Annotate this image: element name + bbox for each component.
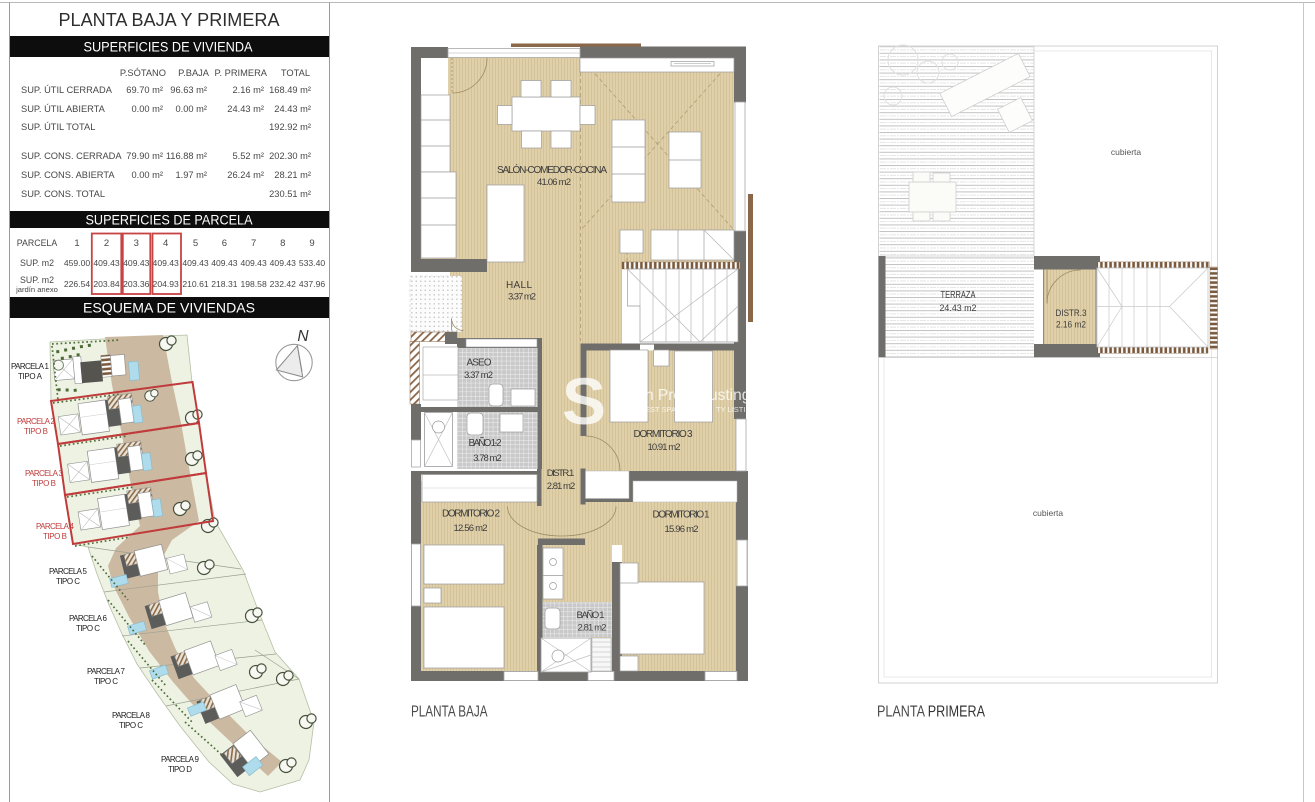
svg-text:TIPO A: TIPO A: [18, 372, 43, 381]
svg-text:TIPO B: TIPO B: [32, 479, 56, 488]
svg-text:24.43 m²: 24.43 m²: [274, 104, 311, 114]
svg-text:232.42: 232.42: [270, 279, 297, 289]
svg-text:SUP. ÚTIL ABIERTA: SUP. ÚTIL ABIERTA: [21, 104, 106, 114]
svg-text:230.51 m²: 230.51 m²: [269, 189, 311, 199]
svg-text:PARCELA 4: PARCELA 4: [36, 522, 75, 531]
svg-text:SUP. ÚTIL CERRADA: SUP. ÚTIL CERRADA: [21, 85, 113, 95]
svg-text:DISTR.3: DISTR.3: [1056, 308, 1087, 318]
svg-text:PARCELA: PARCELA: [17, 238, 58, 248]
svg-text:ASEO: ASEO: [467, 358, 492, 369]
svg-text:SUPERFICIES DE VIVIENDA: SUPERFICIES DE VIVIENDA: [84, 40, 253, 55]
svg-text:210.61: 210.61: [182, 279, 209, 289]
svg-text:69.70 m²: 69.70 m²: [126, 85, 163, 95]
svg-text:2.16 m²: 2.16 m²: [232, 85, 264, 95]
svg-text:3.37 m2: 3.37 m2: [508, 292, 536, 303]
svg-text:2.81 m2: 2.81 m2: [578, 623, 607, 634]
svg-text:8: 8: [280, 238, 285, 249]
svg-text:SUP. ÚTIL TOTAL: SUP. ÚTIL TOTAL: [21, 122, 95, 132]
svg-text:SUP. m2: SUP. m2: [20, 275, 54, 285]
svg-text:41.06 m2: 41.06 m2: [537, 177, 571, 188]
svg-text:DORMITORIO 1: DORMITORIO 1: [653, 510, 710, 521]
svg-text:218.31: 218.31: [211, 279, 238, 289]
svg-text:TIPO B: TIPO B: [43, 532, 67, 541]
svg-text:PLANTA BAJA: PLANTA BAJA: [411, 704, 488, 721]
svg-text:437.96: 437.96: [299, 279, 326, 289]
svg-text:409.43: 409.43: [93, 258, 120, 268]
svg-text:TIPO D: TIPO D: [168, 765, 192, 774]
svg-text:198.58: 198.58: [240, 279, 267, 289]
svg-text:409.43: 409.43: [270, 258, 297, 268]
svg-text:3.37 m2: 3.37 m2: [464, 370, 493, 381]
svg-text:cubierta: cubierta: [1033, 508, 1064, 518]
svg-text:BAÑO 1-2: BAÑO 1-2: [469, 436, 502, 449]
svg-text:409.43: 409.43: [153, 258, 180, 268]
svg-text:PARCELA 6: PARCELA 6: [69, 614, 108, 623]
svg-text:PARCELA 5: PARCELA 5: [49, 567, 88, 576]
svg-text:cubierta: cubierta: [1111, 147, 1142, 157]
svg-text:HALL: HALL: [506, 280, 532, 291]
svg-text:0.00 m²: 0.00 m²: [131, 104, 163, 114]
svg-text:h Pro: h Pro: [645, 387, 682, 404]
svg-text:10.91 m2: 10.91 m2: [648, 442, 681, 453]
svg-text:jardín anexo: jardín anexo: [15, 285, 58, 294]
svg-text:2: 2: [104, 238, 109, 249]
svg-text:TERRAZA: TERRAZA: [941, 290, 976, 301]
svg-text:192.92 m²: 192.92 m²: [269, 122, 311, 132]
svg-text:5: 5: [193, 238, 198, 249]
svg-text:SUP. CONS. CERRADA: SUP. CONS. CERRADA: [21, 151, 122, 161]
svg-text:TIPO C: TIPO C: [94, 677, 118, 686]
svg-text:TIPO C: TIPO C: [119, 721, 143, 730]
svg-text:459.00: 459.00: [64, 258, 91, 268]
svg-text:0.00 m²: 0.00 m²: [131, 170, 163, 180]
svg-text:N: N: [297, 328, 309, 345]
svg-text:7: 7: [251, 238, 256, 249]
svg-text:5.52 m²: 5.52 m²: [232, 151, 264, 161]
svg-text:202.30 m²: 202.30 m²: [269, 151, 311, 161]
svg-text:SUP. m2: SUP. m2: [20, 258, 54, 268]
svg-text:26.24 m²: 26.24 m²: [227, 170, 264, 180]
svg-text:TIPO C: TIPO C: [76, 624, 100, 633]
svg-text:15.96 m2: 15.96 m2: [665, 524, 699, 535]
svg-text:203.84: 203.84: [93, 279, 120, 289]
svg-text:DORMITORIO 2: DORMITORIO 2: [442, 509, 500, 520]
svg-text:SUPERFICIES DE PARCELA: SUPERFICIES DE PARCELA: [86, 213, 253, 228]
svg-text:P. PRIMERA: P. PRIMERA: [214, 68, 267, 78]
svg-text:SUP. CONS. TOTAL: SUP. CONS. TOTAL: [21, 189, 105, 199]
svg-text:96.63 m²: 96.63 m²: [170, 85, 207, 95]
svg-text:3.78 m2: 3.78 m2: [473, 453, 502, 464]
svg-text:PARCELA 1: PARCELA 1: [11, 362, 50, 371]
svg-text:3: 3: [134, 238, 139, 249]
svg-text:204.93: 204.93: [153, 279, 180, 289]
svg-text:409.43: 409.43: [123, 258, 150, 268]
svg-text:PLANTA PRIMERA: PLANTA PRIMERA: [877, 704, 985, 721]
svg-text:SALÓN-COMEDOR-COCINA: SALÓN-COMEDOR-COCINA: [497, 163, 607, 176]
svg-text:PARCELA 7: PARCELA 7: [87, 667, 126, 676]
svg-text:P.BAJA: P.BAJA: [178, 68, 210, 78]
svg-text:24.43 m²: 24.43 m²: [227, 104, 264, 114]
svg-text:79.90 m²: 79.90 m²: [126, 151, 163, 161]
svg-text:2.81 m2: 2.81 m2: [547, 481, 576, 492]
svg-text:TY LISTING: TY LISTING: [716, 405, 757, 414]
svg-text:226.54: 226.54: [64, 279, 91, 289]
svg-text:168.49 m²: 168.49 m²: [269, 85, 311, 95]
svg-text:BAÑO 1: BAÑO 1: [577, 610, 605, 621]
svg-text:409.43: 409.43: [182, 258, 209, 268]
svg-text:DORMITORIO 3: DORMITORIO 3: [634, 429, 693, 440]
svg-text:409.43: 409.43: [240, 258, 267, 268]
svg-text:203.36: 203.36: [123, 279, 150, 289]
svg-text:PARCELA 3: PARCELA 3: [25, 469, 64, 478]
svg-text:ESQUEMA DE VIVIENDAS: ESQUEMA DE VIVIENDAS: [83, 301, 255, 316]
svg-text:533.40: 533.40: [299, 258, 326, 268]
svg-text:2.16 m2: 2.16 m2: [1056, 320, 1086, 330]
svg-text:24.43 m2: 24.43 m2: [940, 303, 977, 314]
svg-text:1: 1: [74, 238, 79, 249]
svg-text:PARCELA 9: PARCELA 9: [161, 755, 200, 764]
svg-text:6: 6: [222, 238, 227, 249]
svg-text:TIPO C: TIPO C: [56, 577, 80, 586]
svg-text:4: 4: [163, 238, 168, 249]
svg-text:PARCELA 2: PARCELA 2: [17, 417, 56, 426]
svg-text:S: S: [562, 364, 606, 438]
svg-text:EST SPA: EST SPA: [645, 405, 676, 414]
svg-text:28.21 m²: 28.21 m²: [274, 170, 311, 180]
svg-text:ustings: ustings: [709, 387, 758, 404]
svg-text:TIPO B: TIPO B: [24, 427, 48, 436]
svg-text:12.56 m2: 12.56 m2: [454, 523, 488, 534]
svg-text:P.SÓTANO: P.SÓTANO: [120, 68, 166, 78]
svg-text:1.97 m²: 1.97 m²: [175, 170, 207, 180]
svg-text:116.88 m²: 116.88 m²: [166, 151, 207, 161]
svg-text:PARCELA 8: PARCELA 8: [112, 711, 151, 720]
svg-text:0.00 m²: 0.00 m²: [175, 104, 207, 114]
svg-text:TOTAL: TOTAL: [281, 68, 310, 78]
svg-text:SUP. CONS. ABIERTA: SUP. CONS. ABIERTA: [21, 170, 115, 180]
svg-text:PLANTA BAJA Y PRIMERA: PLANTA BAJA Y PRIMERA: [59, 9, 281, 30]
svg-text:DISTR.1: DISTR.1: [547, 468, 575, 479]
svg-text:9: 9: [309, 238, 314, 249]
svg-text:409.43: 409.43: [211, 258, 238, 268]
